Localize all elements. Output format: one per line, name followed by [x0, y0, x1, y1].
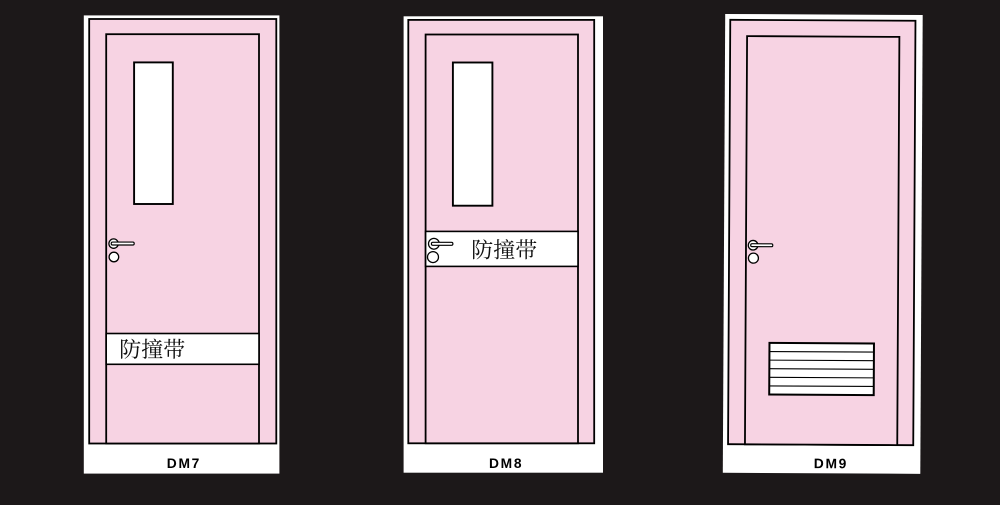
- svg-text:DM9: DM9: [814, 456, 848, 471]
- svg-text:DM7: DM7: [167, 456, 201, 471]
- svg-text:DM8: DM8: [489, 456, 523, 471]
